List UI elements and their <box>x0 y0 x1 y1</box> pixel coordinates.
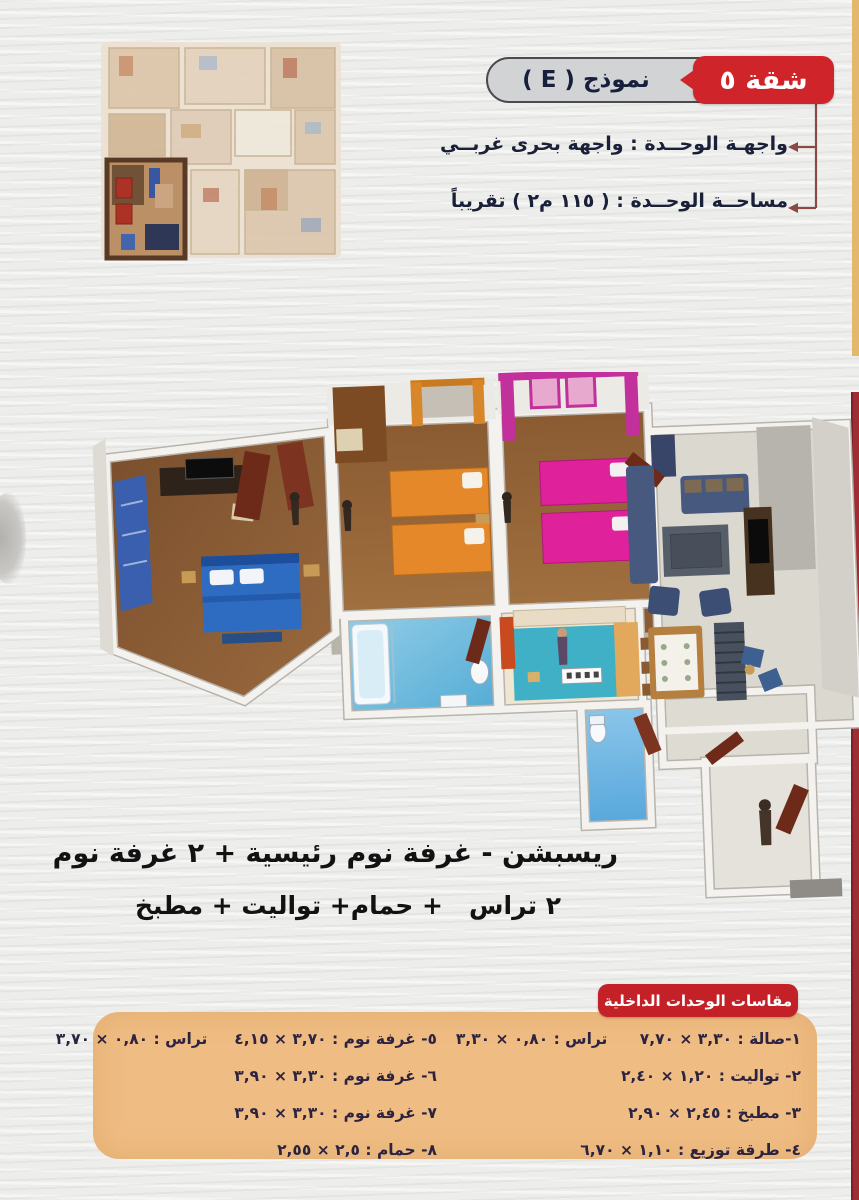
curtain-orange <box>410 382 423 426</box>
counter-right <box>614 622 641 697</box>
curtain-pink <box>500 375 516 441</box>
dimension-row-5: ٥- غرفة نوم : ٣,٧٠ × ٤,١٥ تراس : ٠,٨٠ × … <box>56 1028 437 1050</box>
arrow-left-icon-2 <box>788 203 798 213</box>
dimensions-table-title: مقاسات الوحدات الداخلية <box>598 984 798 1017</box>
kitchen-fixtures <box>499 606 640 701</box>
orange-bed-1 <box>390 468 490 518</box>
description-line-1: ريسبشن - غرفة نوم رئيسية + ٢ غرفة نوم <box>78 838 618 869</box>
bathtub <box>352 624 391 705</box>
area-line: مساحــة الوحــدة : ( ١١٥ م٢ ) تقريباً <box>451 190 788 212</box>
red-cabinet <box>499 617 515 669</box>
dimensions-column-left: ٥- غرفة نوم : ٣,٧٠ × ٤,١٥ تراس : ٠,٨٠ × … <box>56 1028 437 1161</box>
highlighted-unit <box>107 160 185 258</box>
orange-bed-2 <box>392 522 492 576</box>
dimension-row-7: ٧- غرفة نوم : ٣,٣٠ × ٣,٩٠ <box>234 1102 437 1124</box>
edge-stripe-tan <box>852 0 859 356</box>
brochure-page: نموذج ( E ) شقة ٥ واجهـة الوحــدة : واجه… <box>0 0 859 1200</box>
dimension-row-4: ٤- طرقة توزيع : ١,١٠ × ٦,٧٠ <box>580 1139 801 1161</box>
dimension-row-6: ٦- غرفة نوم : ٣,٣٠ × ٣,٩٠ <box>234 1065 437 1087</box>
apartment-badge-label: شقة ٥ <box>719 65 807 96</box>
stove <box>561 667 602 684</box>
armchair <box>648 585 681 616</box>
dining-table <box>640 625 705 699</box>
connector-lines <box>780 100 840 218</box>
dimension-row-1: ١-صالة : ٣,٣٠ × ٧,٧٠ تراس : ٠,٨٠ × ٣,٣٠ <box>456 1028 801 1050</box>
badge-notch-icon <box>680 70 694 90</box>
dimension-row-8: ٨- حمام : ٢,٥ × ٢,٥٥ <box>277 1139 437 1161</box>
armchair <box>699 587 732 617</box>
dimension-row-2: ٢- تواليت : ١,٢٠ × ٢,٤٠ <box>621 1065 801 1087</box>
pink-bed-2 <box>541 510 641 564</box>
facade-line: واجهـة الوحــدة : واجهة بحرى غربــي <box>440 133 788 155</box>
dimension-row-3: ٣- مطبخ : ٢,٤٥ × ٢,٩٠ <box>628 1102 801 1124</box>
tv-screen <box>185 457 234 479</box>
apartment-description: ريسبشن - غرفة نوم رئيسية + ٢ غرفة نوم ٢ … <box>78 838 618 920</box>
rug <box>662 524 730 576</box>
apartment-badge: شقة ٥ <box>693 56 834 104</box>
building-overview-floorplan <box>95 38 347 266</box>
pink-bed-1 <box>540 458 640 506</box>
arrow-left-icon <box>788 142 798 152</box>
model-label: نموذج ( E ) <box>522 67 650 93</box>
apartment-3d-floorplan <box>0 372 859 917</box>
window-bedroom-2 <box>415 384 482 419</box>
tv-unit <box>743 507 774 596</box>
toilet-seat <box>470 660 489 685</box>
window-bedroom-3 <box>530 377 559 408</box>
dimensions-table: ١-صالة : ٣,٣٠ × ٧,٧٠ تراس : ٠,٨٠ × ٣,٣٠ … <box>93 1012 817 1159</box>
wardrobe-bedroom-2 <box>333 385 388 463</box>
description-line-2: ٢ تراس + حمام+ تواليت + مطبخ <box>78 891 618 920</box>
sink <box>440 695 466 708</box>
sofa-top <box>680 474 749 515</box>
sofa-left <box>626 465 659 584</box>
dimensions-column-right: ١-صالة : ٣,٣٠ × ٧,٧٠ تراس : ٠,٨٠ × ٣,٣٠ … <box>456 1028 801 1161</box>
